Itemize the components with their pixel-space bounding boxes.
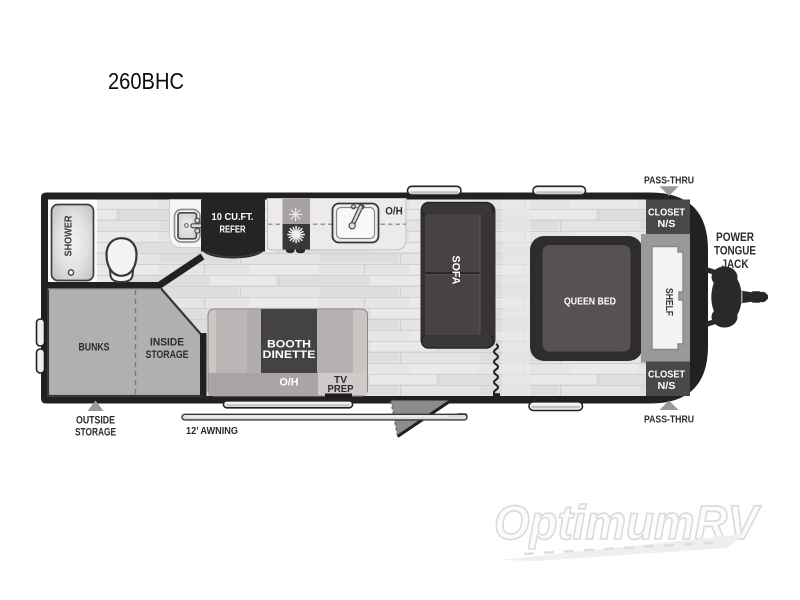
svg-text:CLOSET: CLOSET	[648, 208, 685, 219]
svg-text:O/H: O/H	[280, 376, 299, 388]
svg-text:N/S: N/S	[658, 381, 676, 392]
svg-text:REFER: REFER	[220, 225, 247, 236]
svg-text:PASS-THRU: PASS-THRU	[644, 175, 694, 187]
svg-text:SOFA: SOFA	[450, 256, 462, 285]
svg-text:BUNKS: BUNKS	[79, 342, 110, 354]
svg-text:CLOSET: CLOSET	[648, 370, 685, 381]
svg-text:DINETTE: DINETTE	[263, 349, 316, 361]
svg-text:QUEEN BED: QUEEN BED	[564, 296, 616, 308]
svg-text:PASS-THRU: PASS-THRU	[644, 414, 694, 426]
svg-text:PREP: PREP	[328, 383, 354, 395]
svg-text:SHELF: SHELF	[663, 288, 674, 316]
svg-text:STORAGE: STORAGE	[75, 427, 116, 439]
svg-text:TONGUE: TONGUE	[714, 246, 756, 258]
svg-text:INSIDE: INSIDE	[150, 337, 184, 349]
svg-text:260BHC: 260BHC	[108, 68, 184, 94]
svg-text:STORAGE: STORAGE	[146, 349, 189, 361]
svg-text:O/H: O/H	[385, 206, 403, 218]
svg-text:12’ AWNING: 12’ AWNING	[186, 425, 238, 437]
svg-text:N/S: N/S	[658, 219, 676, 230]
svg-text:SHOWER: SHOWER	[64, 215, 75, 257]
svg-text:10 CU.FT.: 10 CU.FT.	[212, 212, 254, 223]
svg-text:POWER: POWER	[716, 232, 755, 244]
svg-text:OUTSIDE: OUTSIDE	[76, 415, 115, 427]
